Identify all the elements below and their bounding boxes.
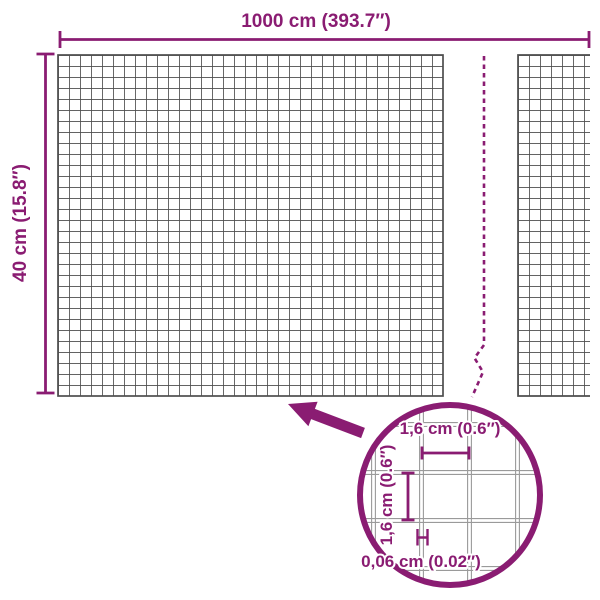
height-dimension: 40 cm (15.8″) (10, 54, 55, 393)
detail-wire-thickness-label: 0,06 cm (0.02″) (361, 552, 481, 571)
diagram-canvas: 1000 cm (393.7″) 40 cm (15.8″) 1,6 cm (0… (0, 0, 600, 600)
height-dimension-line (37, 54, 55, 393)
dimension-diagram: 1000 cm (393.7″) 40 cm (15.8″) 1,6 cm (0… (0, 0, 600, 600)
mesh-panel-right (518, 55, 590, 396)
width-dimension: 1000 cm (393.7″) (60, 11, 589, 48)
break-line (472, 56, 484, 397)
detail-cell-width-label: 1,6 cm (0.6″) (400, 419, 501, 438)
width-dimension-label: 1000 cm (393.7″) (241, 11, 391, 32)
width-dimension-line (60, 31, 589, 48)
zoom-arrow-icon (288, 402, 365, 438)
height-dimension-label: 40 cm (15.8″) (10, 164, 31, 282)
mesh-panel-left (58, 55, 443, 396)
detail-cell-height-label: 1,6 cm (0.6″) (377, 445, 396, 546)
